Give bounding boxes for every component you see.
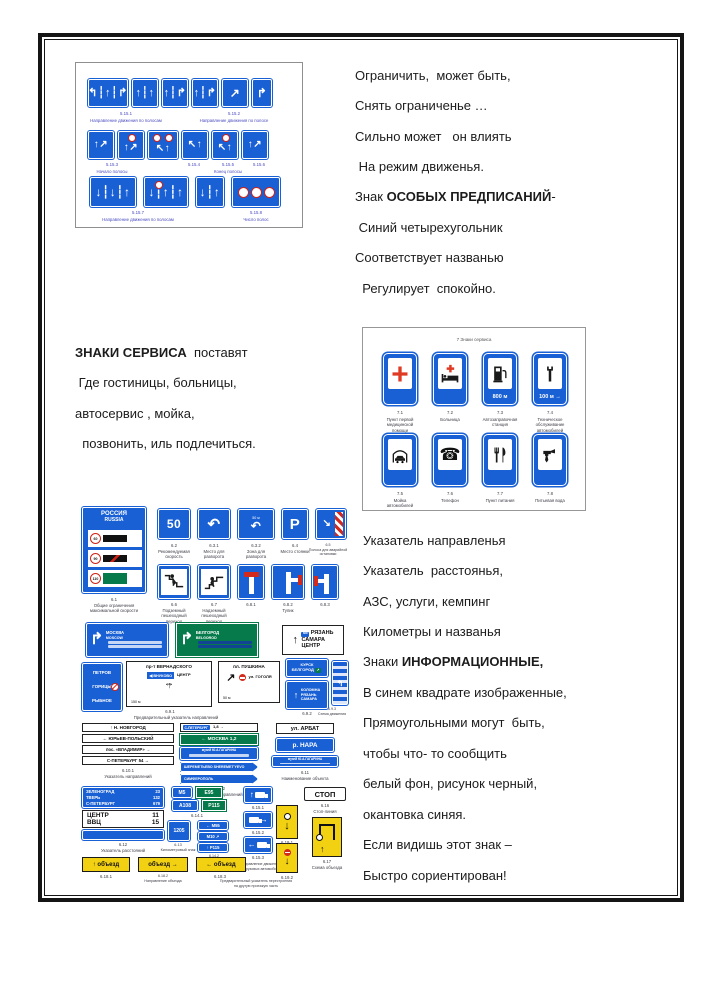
junction-circle-icon — [284, 813, 291, 820]
caption-6-15-3: 6.15.3 — [248, 855, 268, 861]
sign-5-15-7b: ↓┆↑┆↑ — [144, 177, 188, 207]
speed-circle-icon: 60 — [90, 533, 101, 544]
street-label: пл. ПУШКИНА — [233, 664, 265, 669]
diagonal-arrow-icon: ↗ — [226, 671, 235, 684]
poem-line: В синем квадрате изображенные, — [363, 677, 567, 707]
poem-line: На режим движенья. — [355, 151, 556, 181]
sign-7-7 — [483, 434, 517, 486]
caption-6-17: 6.17 Схема объезда — [306, 859, 348, 870]
sign-6-12-distances: ЗЕЛЕНОГРАД23 ТВЕРЬ132 С-ПЕТЕРБУРГ679 — [82, 787, 164, 808]
poem-line: АЗС, услуги, кемпинг — [363, 586, 567, 616]
speed-circle-icon: 110 — [90, 573, 101, 584]
city-label-latin: BELGOROD — [196, 636, 254, 640]
sign-6-6-underpass — [158, 565, 190, 599]
sign-route-e95: Е95 — [196, 787, 222, 798]
poem-information-signs: Указатель направленья Указатель расстоян… — [363, 525, 567, 890]
lane-arrows-icon: ↑┆↑ — [135, 88, 154, 99]
sign-6-8-1-deadend — [238, 565, 264, 599]
speed-limit-circle-icon — [165, 134, 173, 142]
caption-5-15-8: 5.15.8Число полос — [228, 210, 284, 222]
city-label: РЯЗАНЬ — [311, 630, 334, 636]
arrow-icon: ↘ — [323, 519, 332, 529]
poem-line: Знак ОСОБЫХ ПРЕДПИСАНИЙ- — [355, 182, 556, 212]
caption-5-15-3: 5.15.3Начало полосы — [90, 162, 134, 174]
lane-arrows-icon: ↖↑ — [156, 144, 170, 154]
water-tap-icon — [538, 439, 562, 470]
city-label: ЗЕЛЕНОГРАД — [86, 789, 114, 794]
sign-5-15-1: ↰┆↑┆↱ — [88, 79, 128, 107]
sign-5-15-2e: ↱ — [252, 79, 272, 107]
sign-moskva-12: ← МОСКВА 1,2 — [180, 734, 258, 745]
service-image-title: 7 Знаки сервиса — [363, 337, 585, 343]
sign-spb-54: С-ПЕТЕРБУРГ 54 → — [82, 756, 174, 765]
arrow-up-icon: ↑ — [294, 691, 299, 700]
sign-5-15-6b: ↑↗ — [242, 131, 268, 159]
speed-circle-icon — [264, 187, 275, 198]
pedestrian-underpass-icon — [161, 569, 187, 595]
sign-6-9-1-advance-green: ↱ БЕЛГОРОД BELGOROD — [176, 623, 258, 657]
micro-text-bar — [108, 645, 162, 648]
branch-arrow-icon: ↱ — [180, 632, 194, 648]
caption-7-3: 7.3Автозаправочная станция — [473, 410, 527, 428]
poem-line: Километры и названья — [363, 616, 567, 646]
sign-6-15-2-truck-right: → — [244, 812, 272, 828]
object-label: музей Ю.А.ГАГАРИНА — [288, 758, 322, 762]
country-name-latin: RUSSIA — [105, 518, 124, 524]
poem-line: Соответствует названью — [355, 243, 556, 273]
lane-arrows-icon: ↓┆↓┆↑ — [96, 186, 131, 198]
distance-label: 50 м — [223, 696, 230, 700]
caption-6-13: 6.13 Километровый знак — [154, 843, 202, 853]
poem-line: ЗНАКИ СЕРВИСА поставят — [75, 337, 256, 367]
poem-line: Указатель расстоянья, — [363, 555, 567, 585]
speed-row: 110 — [88, 570, 142, 587]
city-label: ГОРИЦЫ — [92, 684, 111, 689]
sign-6-4-parking: P — [282, 509, 308, 539]
sign-5-15-2d: ↗ — [222, 79, 248, 107]
poem-line: Знаки ИНФОРМАЦИОННЫЕ, — [363, 647, 567, 677]
poem-line: автосервис , мойка, — [75, 398, 256, 428]
lane-arrows-icon: ↓┆↑ — [200, 186, 221, 198]
caption-6-9-1: 6.9.1 — [158, 709, 182, 715]
speed-row: 90 — [88, 550, 142, 567]
speed-circle-icon — [238, 187, 249, 198]
service-signs-image: 7 Знаки сервиса 800 м 100 м → 7.1Пункт п… — [362, 327, 586, 511]
caption-shift-group: Предварительный указатель перестроения н… — [176, 879, 336, 888]
deadend-bar-icon — [298, 575, 302, 585]
km-value: 15 — [152, 819, 159, 826]
caption-7-7: 7.7Пункт питания — [473, 491, 527, 503]
u-turn-icon: ↶ — [207, 517, 220, 532]
caption-6-12: 6.12 Указатель расстояний — [88, 842, 158, 853]
document-page: ↰┆↑┆↱ ↑┆↑ ↑┆↱ ↑┆↱ ↗ ↱ 5.15.1Направление … — [0, 0, 707, 1000]
city-silhouette-icon — [103, 535, 127, 542]
sign-7-1 — [383, 353, 417, 405]
sign-route-m10-arrow: М10 ↗ — [198, 832, 228, 841]
route-tag: ↗ — [315, 668, 321, 673]
arrow-up-icon: ↑ — [320, 844, 325, 854]
lane-arrows-icon: ↑↗ — [248, 140, 262, 150]
city-crossed-icon — [103, 555, 127, 562]
sign-7-5 — [383, 434, 417, 486]
sign-kursk-belgorod: КУРСК БЕЛГОРОД ↗ — [286, 659, 328, 677]
caption-7-4: 7.4Техническое обслуживание автомобилей — [523, 410, 577, 433]
sign-7-6: ☎ — [433, 434, 467, 486]
direction-label: ЦЕНТР — [177, 673, 191, 678]
sign-5-15-6a: ↖↑ — [212, 131, 238, 159]
sign-7-4: 100 м → — [533, 353, 567, 405]
sign-6-9-3-scheme: ↰ — [332, 661, 348, 705]
telephone-icon: ☎ — [438, 439, 462, 470]
sign-sheremetyevo: ШЕРЕМЕТЬЕВО SHEREMET'YEVO — [180, 762, 258, 772]
sign-6-18-2-detour: объезд → — [138, 857, 188, 872]
caption-6-10-1: 6.10.1 Указатель направлений — [92, 768, 164, 779]
caption-5-15-2: 5.15.2Направление движения по полосе — [192, 111, 276, 123]
distance-label: 800 м — [484, 394, 516, 400]
sign-5-15-2b: ↑┆↱ — [162, 79, 188, 107]
caption-6-9-3: 6.9.3 Схема движения — [316, 707, 348, 716]
caption-6-8-2: 6.8.2 Тупик — [268, 602, 308, 613]
caption-5-15-7: 5.15.7Направление движения по полосам — [88, 210, 188, 222]
truck-restriction-circle-icon — [222, 134, 230, 142]
truck-icon — [249, 817, 259, 823]
distance-label: 100 м → — [534, 394, 566, 400]
wrench-icon — [538, 358, 562, 389]
poem-line: Снять ограниченье … — [355, 90, 556, 120]
arrow-up-icon: ↑ — [167, 680, 172, 690]
km-value: 23 — [155, 789, 160, 794]
poem-line: чтобы что- то сообщить — [363, 738, 567, 768]
sign-distances-small — [82, 830, 164, 840]
city-label: РЫБНОЕ — [92, 698, 112, 703]
lane-arrows-icon: ↖↑ — [218, 143, 232, 153]
lane-arrows-icon: ↖↑ — [188, 140, 202, 150]
restriction-circle-icon — [111, 683, 119, 691]
caption-7-5: 7.5Мойка автомобилей — [373, 491, 427, 509]
dest-label: ЦЕНТР — [87, 812, 109, 819]
poem-line: Прямоугольными могут быть, — [363, 708, 567, 738]
sign-route-m5: М5 — [172, 787, 192, 798]
caption-6-19-1: 6.19.1 — [270, 840, 304, 846]
lane-shift-arrow-icon: ↓ — [285, 856, 290, 867]
poem-line: окантовка синяя. — [363, 799, 567, 829]
poem-line: позвонить, иль подлечиться. — [75, 428, 256, 458]
poem-service-signs: ЗНАКИ СЕРВИСА поставят Где гостиницы, бо… — [75, 337, 256, 459]
speed-limit-circle-icon — [153, 134, 161, 142]
sign-gagarin-object: музей Ю.А.ГАГАРИНА — [272, 756, 338, 767]
truck-icon — [255, 792, 265, 798]
caption-7-8: 7.8Питьевая вода — [523, 491, 577, 503]
sign-7-3: 800 м — [483, 353, 517, 405]
sign-5-15-7a: ↓┆↓┆↑ — [90, 177, 136, 207]
caption-advance-pointer: Предварительный указатель направлений — [116, 715, 236, 721]
sign-pushkina: пл. ПУШКИНА ↗ ул. ГОГОЛЯ 50 м — [218, 661, 280, 703]
motorway-icon — [103, 573, 127, 584]
truck-restriction-circle-icon — [155, 181, 163, 189]
sign-yuryev-polskiy: ← ЮРЬЕВ-ПОЛЬСКИЙ — [82, 734, 174, 743]
sign-6-15-1-truck-up: ↑ — [244, 787, 272, 803]
lane-arrows-icon: ↱ — [257, 87, 268, 99]
sign-5-15-4: ↖↑ — [148, 131, 178, 159]
street-label: пр-т ВЕРНАДСКОГО — [146, 664, 192, 669]
poem-line: Указатель направленья — [363, 525, 567, 555]
car-wash-icon — [388, 439, 412, 470]
km-value: 132 — [153, 795, 160, 800]
poem-special-prescriptions: Ограничить, может быть, Снять ограничень… — [355, 60, 556, 304]
sign-simferopol: СИМФЕРОПОЛЬ — [180, 774, 258, 784]
sign-5-15-2c: ↑┆↱ — [192, 79, 218, 107]
km-value: 679 — [153, 801, 160, 806]
poem-line: Регулирует спокойно. — [355, 273, 556, 303]
city-tag: С-ПЕТЕРБУРГ — [183, 725, 210, 730]
city-label: ЦЕНТР — [301, 643, 333, 649]
sign-6-1-russia: РОССИЯ RUSSIA 60 90 110 — [82, 507, 146, 593]
lane-arrows-icon: ↑┆↱ — [164, 88, 187, 99]
city-label: БЕЛГОРОД — [292, 667, 314, 672]
caption-6-7: 6.7 Надземный пешеходный переход — [186, 602, 242, 624]
caption-6-15-2: 6.15.2 — [248, 830, 268, 836]
sign-5-15-7c: ↓┆↑ — [196, 177, 224, 207]
city-label-latin: MOSCOW — [106, 636, 164, 640]
object-label: музей Ю.А.ГАГАРИНА — [202, 749, 236, 753]
caption-6-16: 6.16 Стоп-линия — [310, 803, 340, 814]
dest-label: ВВЦ — [87, 819, 101, 826]
sign-gagarin-museum: музей Ю.А.ГАГАРИНА — [180, 747, 258, 760]
sign-6-7-overpass — [198, 565, 230, 599]
medical-cross-icon — [388, 358, 412, 389]
lane-arrows-icon: ↓┆↑┆↑ — [149, 186, 184, 198]
road-bar-icon — [324, 574, 329, 594]
lane-shift-arrow-icon: ↓ — [284, 820, 290, 832]
information-signs-image: РОССИЯ RUSSIA 60 90 110 6.1 Общие ограни… — [80, 505, 348, 885]
speed-circle-icon — [251, 187, 262, 198]
sign-vladimir: пос. «ВЛАДИМИР» → — [82, 745, 174, 754]
lane-arrows-icon: ↗ — [230, 87, 241, 99]
sign-6-8-3-deadend — [312, 565, 338, 599]
sign-6-19-2-shift: ↓ — [276, 843, 298, 873]
arrow-up-icon: ↑ — [292, 635, 298, 646]
sign-arbat: ул. АРБАТ — [276, 723, 334, 734]
junction-circle-icon — [316, 834, 323, 841]
deadend-bar-icon — [244, 572, 259, 577]
sign-6-16-stop: СТОП — [304, 787, 346, 801]
micro-text-bar — [198, 645, 252, 648]
hospital-bed-icon — [438, 358, 462, 389]
truck-icon — [257, 842, 267, 848]
sign-5-15-5: ↖↑ — [182, 131, 208, 159]
sign-vernadskogo: пр-т ВЕРНАДСКОГО ◀ ВНУКОВО ЦЕНТР ↔ ↑ 150… — [126, 661, 212, 707]
poem-line: Сильно может он влиять — [355, 121, 556, 151]
sign-centr-vvc: ЦЕНТР11 ВВЦ15 — [82, 810, 164, 828]
km-value: 11 — [152, 812, 159, 819]
city-label: ПЕТРОВ — [93, 670, 111, 675]
lane-arrows-icon: ↑↗ — [124, 143, 138, 153]
poem-line: Где гостиницы, больницы, — [75, 367, 256, 397]
poem-line: Синий четырехугольник — [355, 212, 556, 242]
no-entry-icon — [239, 674, 246, 681]
caption-5-15-6: 5.15.6 — [242, 162, 276, 169]
sign-7-8 — [533, 434, 567, 486]
caption-6-18-1: 6.18.1 — [92, 874, 120, 880]
sign-6-15-3-truck-left: ← — [244, 837, 272, 853]
sign-route-r115: Р115 — [202, 800, 226, 811]
pedestrian-overpass-icon — [201, 569, 227, 595]
sign-ryazan-samara-centr: ↑ М5РЯЗАНЬ САМАРА ЦЕНТР — [282, 625, 344, 655]
poem-line: Ограничить, может быть, — [355, 60, 556, 90]
city-label: С-ПЕТЕРБУРГ — [86, 801, 115, 806]
micro-text-bar — [108, 641, 162, 644]
speed-limit-circle-icon — [128, 134, 136, 142]
fuel-pump-icon — [488, 358, 512, 389]
city-label: САМАРА — [301, 697, 320, 701]
distance-label: 150 м — [131, 700, 140, 704]
speed-row: 60 — [88, 530, 142, 547]
caption-7-1: 7.1Пункт первой медицинской помощи — [373, 410, 427, 433]
cutlery-icon — [488, 439, 512, 470]
u-turn-icon: ↶ — [251, 520, 262, 532]
lane-arrows-icon: ↑↗ — [94, 140, 108, 150]
sign-nara: р. НАРА — [276, 738, 334, 752]
sign-6-8-2-deadend — [272, 565, 304, 599]
micro-text-bar — [189, 754, 249, 756]
caption-6-5: 6.5 Полоса для аварийной остановки — [306, 543, 350, 557]
lane-arrows-icon: ↑┆↱ — [194, 88, 217, 99]
sign-6-5-emergency-lane: ↘ — [316, 509, 346, 539]
sign-6-17-detour-scheme: ↑ — [312, 817, 342, 857]
route-arrow-icon: ↰ — [337, 679, 344, 688]
sign-6-2: 50 — [158, 509, 190, 539]
emergency-stripes-icon — [335, 512, 343, 536]
caption-6-11: 6.11 Наименование объекта — [272, 770, 338, 781]
sign-6-3-1: ↶ — [198, 509, 230, 539]
poem-line: Если видишь этот знак – — [363, 829, 567, 859]
caption-7-2: 7.2Больница — [423, 410, 477, 422]
sign-petrov: ПЕТРОВ ГОРИЦЫ РЫБНОЕ — [82, 663, 122, 711]
sign-spb-18: С-ПЕТЕРБУРГ1,8 → — [180, 723, 258, 732]
caption-6-15-1: 6.15.1 — [248, 805, 268, 811]
sign-5-15-3b: ↑↗ — [118, 131, 144, 159]
sign-6-18-1-detour: ↑ объезд — [82, 857, 130, 872]
street-label: ул. ГОГОЛЯ — [249, 675, 272, 680]
sign-novgorod: ↑ Н. НОВГОРОД — [82, 723, 174, 732]
sign-6-3-2: 50 м↶ — [238, 509, 274, 539]
city-label: ТВЕРЬ — [86, 795, 100, 800]
poem-line: белый фон, рисунок черный, — [363, 769, 567, 799]
lane-arrows-icon: ↰┆↑┆↱ — [88, 88, 128, 99]
deadend-bar-icon — [314, 576, 318, 586]
sign-5-15-2a: ↑┆↑ — [132, 79, 158, 107]
sign-5-15-3a: ↑↗ — [88, 131, 114, 159]
caption-6-14-1: 6.14.1 — [182, 813, 212, 819]
caption-5-15-1: 5.15.1Направление движения по полосам — [84, 111, 168, 123]
caption-6-8-3: 6.8.3 — [312, 602, 338, 608]
no-entry-icon — [284, 849, 291, 856]
micro-text-bar — [198, 641, 252, 644]
caption-7-6: 7.6Телефон — [423, 491, 477, 503]
sign-6-18-3-detour: ← объезд — [196, 857, 246, 872]
sign-route-a108: А108 — [172, 800, 198, 811]
sign-6-19-1-shift: ↓ — [276, 805, 298, 839]
poem-line: Быстро сориентирован! — [363, 860, 567, 890]
sign-6-9-1-advance-blue: ↱ МОСКВА MOSCOW — [86, 623, 168, 657]
sign-6-13-km: 1205 — [168, 821, 190, 841]
branch-arrow-icon: ↱ — [90, 632, 104, 648]
sign-route-r115-arrow: ↑ Р115 — [198, 843, 228, 852]
sign-5-15-8 — [232, 177, 280, 207]
road-bar-icon — [249, 574, 254, 594]
caption-6-1: 6.1 Общие ограничения максимальной скоро… — [80, 597, 148, 614]
caption-6-8-1: 6.8.1 — [238, 602, 264, 608]
speed-circle-icon: 90 — [90, 553, 101, 564]
distance-label: 1,8 → — [213, 725, 224, 730]
sign-route-m55-arrow: ← М55 — [198, 821, 228, 830]
road-bar-icon — [286, 572, 291, 594]
sign-7-2 — [433, 353, 467, 405]
sign-kolomna: ↑ КОЛОМНА РЯЗАНЬ САМАРА — [286, 681, 328, 709]
lane-signs-image: ↰┆↑┆↱ ↑┆↑ ↑┆↱ ↑┆↱ ↗ ↱ 5.15.1Направление … — [75, 62, 303, 228]
